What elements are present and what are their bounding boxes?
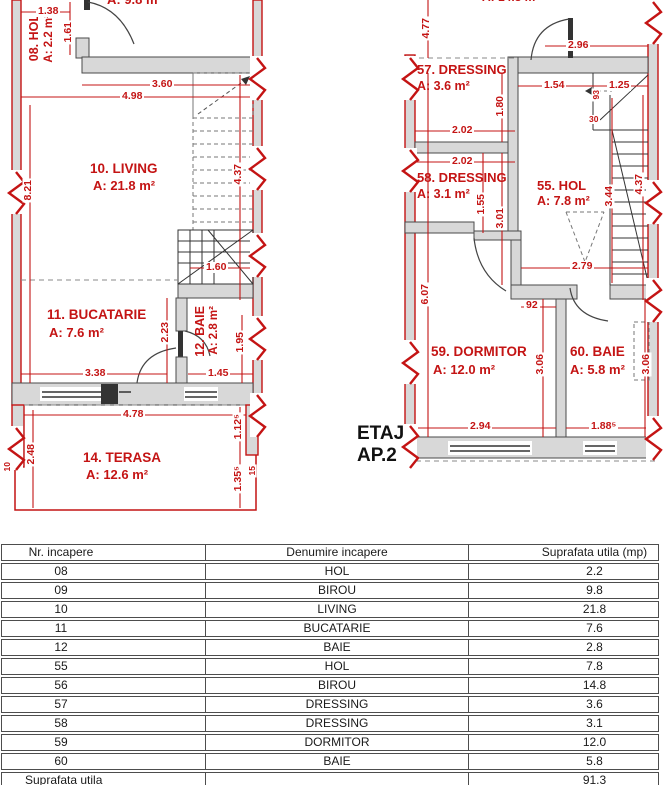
dim-30: 30 [587,115,600,124]
room-label-birou09-cut: A: 9.8 m² [107,0,162,6]
cell-nr: 60 [2,754,206,769]
dim-1-125: 1.12⁵ [233,412,244,441]
dim-4-37-right: 4.37 [634,172,645,196]
cell-suprafata: 7.6 [469,621,658,636]
floor-label-line2: AP.2 [357,445,404,467]
cell-denumire: BIROU [206,678,469,693]
cell-suprafata: 21.8 [469,602,658,617]
header-suprafata-utila: Suprafata utila (mp) [469,545,658,560]
cell-suprafata: 3.6 [469,697,658,712]
cell-denumire: HOL [206,659,469,674]
dim-1-885: 1.88⁵ [589,421,618,432]
cell-suprafata: 7.8 [469,659,658,674]
dim-2-79: 2.79 [570,261,594,272]
dim-1-38: 1.38 [36,6,60,17]
dim-15: 15 [248,464,257,477]
cell-denumire: BAIE [206,754,469,769]
cell-nr: 11 [2,621,206,636]
dim-1-60: 1.60 [204,262,228,273]
room-label-bucatarie11: 11. BUCATARIE [47,308,146,322]
dim-93: 93 [592,88,601,101]
cell-nr: 09 [2,583,206,598]
room-area-living10: A: 21.8 m² [93,179,155,192]
dim-2-02-b: 2.02 [450,156,474,167]
dim-3-01: 3.01 [495,206,506,230]
dim-3-44: 3.44 [604,184,615,208]
cell-denumire: BUCATARIE [206,621,469,636]
cell-suprafata: 5.8 [469,754,658,769]
cell-suprafata: 14.8 [469,678,658,693]
table-row: 56 BIROU 14.8 [1,677,659,694]
floor-label: ETAJ AP.2 [357,423,404,467]
cell-nr: 10 [2,602,206,617]
room-label-dormitor59: 59. DORMITOR [431,345,527,359]
cell-nr: 56 [2,678,206,693]
floor-label-line1: ETAJ [357,423,404,445]
footer-spacer [206,773,469,785]
room-label-dressing58: 58. DRESSING [417,171,507,184]
dim-1-45: 1.45 [206,368,230,379]
cell-denumire: DRESSING [206,697,469,712]
dim-4-77: 4.77 [421,16,432,40]
table-row: 10 LIVING 21.8 [1,601,659,618]
room-area-bucatarie11: A: 7.6 m² [49,326,104,339]
dim-2-94: 2.94 [468,421,492,432]
table-row: 08 HOL 2.2 [1,563,659,580]
table-header-row: Nr. incapere Denumire incapere Suprafata… [1,544,659,561]
dim-2-96: 2.96 [566,40,590,51]
dim-3-06-a: 3.06 [535,352,546,376]
dim-10: 10 [3,460,12,473]
room-label-birou56-cut: A: 14.8 m² [482,0,539,3]
cell-nr: 55 [2,659,206,674]
dim-2-48: 2.48 [26,442,37,466]
table-row: 11 BUCATARIE 7.6 [1,620,659,637]
floorplans-area: A: 9.8 m² 08. HOL A: 2.2 m² 1.38 1.61 3.… [0,0,663,543]
room-label-dressing57: 57. DRESSING [417,63,507,76]
room-label-baie12: 12. BAIE [194,306,207,357]
dim-92: 92 [524,300,540,311]
dim-4-98: 4.98 [120,91,144,102]
dim-1-61: 1.61 [63,20,74,44]
cell-nr: 08 [2,564,206,579]
dim-6-07: 6.07 [420,282,431,306]
dim-8-21: 8.21 [23,178,34,202]
dim-3-60: 3.60 [150,79,174,90]
dim-1-355: 1.35⁵ [233,464,244,493]
room-area-baie12: A: 2.8 m² [209,306,221,355]
cell-suprafata: 12.0 [469,735,658,750]
table-row: 09 BIROU 9.8 [1,582,659,599]
footer-label: Suprafata utila [2,773,206,785]
dim-3-06-b: 3.06 [641,352,652,376]
room-area-dressing57: A: 3.6 m² [417,80,470,93]
header-nr-incapere: Nr. incapere [2,545,206,560]
cell-nr: 57 [2,697,206,712]
table-row: 58 DRESSING 3.1 [1,715,659,732]
header-denumire-incapere: Denumire incapere [206,545,469,560]
table-row: 57 DRESSING 3.6 [1,696,659,713]
table-footer-row: Suprafata utila 91.3 [1,772,659,785]
room-area-baie60: A: 5.8 m² [570,363,625,376]
dim-2-23: 2.23 [160,320,171,344]
room-label-baie60: 60. BAIE [570,345,625,359]
room-label-hol08: 08. HOL [28,14,41,61]
cell-denumire: DORMITOR [206,735,469,750]
cell-denumire: BAIE [206,640,469,655]
cell-denumire: HOL [206,564,469,579]
room-area-hol55: A: 7.8 m² [537,195,590,208]
cell-nr: 12 [2,640,206,655]
table-row: 12 BAIE 2.8 [1,639,659,656]
dim-1-95: 1.95 [235,330,246,354]
cell-nr: 59 [2,735,206,750]
room-area-dormitor59: A: 12.0 m² [433,363,495,376]
dim-4-37-left: 4.37 [233,162,244,186]
table-row: 60 BAIE 5.8 [1,753,659,770]
cell-suprafata: 9.8 [469,583,658,598]
room-area-hol08: A: 2.2 m² [44,14,56,63]
dim-1-25: 1.25 [607,80,631,91]
cell-suprafata: 2.8 [469,640,658,655]
room-area-terasa14: A: 12.6 m² [86,468,148,481]
footer-total-value: 91.3 [469,773,658,785]
area-table: Nr. incapere Denumire incapere Suprafata… [1,544,659,785]
dim-4-78: 4.78 [121,409,145,420]
room-label-terasa14: 14. TERASA [83,451,161,465]
cell-denumire: BIROU [206,583,469,598]
room-label-hol55: 55. HOL [537,179,586,192]
cell-denumire: DRESSING [206,716,469,731]
dim-2-02-a: 2.02 [450,125,474,136]
dim-1-80: 1.80 [495,94,506,118]
cell-suprafata: 3.1 [469,716,658,731]
dim-1-54: 1.54 [542,80,566,91]
table-body: 08 HOL 2.2 09 BIROU 9.8 10 LIVING 21.8 1… [1,563,659,770]
cell-denumire: LIVING [206,602,469,617]
floorplan-page: A: 9.8 m² 08. HOL A: 2.2 m² 1.38 1.61 3.… [0,0,663,785]
dim-1-55: 1.55 [476,192,487,216]
table-row: 55 HOL 7.8 [1,658,659,675]
room-area-dressing58: A: 3.1 m² [417,188,470,201]
room-label-living10: 10. LIVING [90,162,158,176]
dim-3-38: 3.38 [83,368,107,379]
cell-suprafata: 2.2 [469,564,658,579]
table-row: 59 DORMITOR 12.0 [1,734,659,751]
cell-nr: 58 [2,716,206,731]
